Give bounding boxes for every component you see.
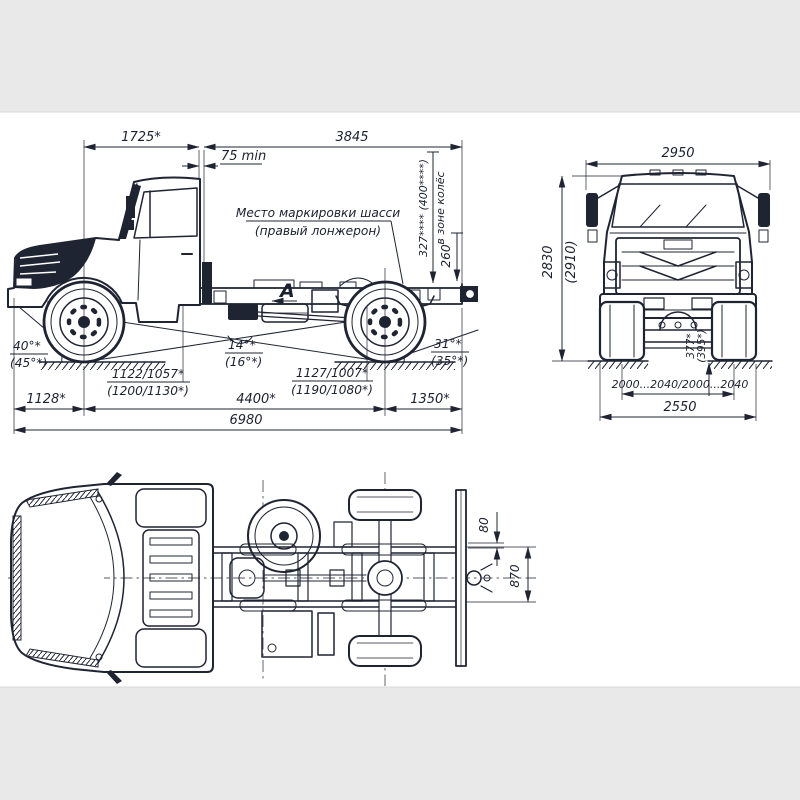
- toolbox: [262, 611, 312, 657]
- top-gray-band: [0, 0, 800, 112]
- dim-6980-label: 6980: [229, 413, 262, 428]
- dim-80-label: 80: [477, 517, 491, 533]
- front-ground-hatch-right: [708, 361, 772, 369]
- frame-bracket-plan: [334, 522, 352, 547]
- cab-hatch-top: [136, 489, 206, 527]
- angle-departure-alt-label: (35°*): [431, 354, 468, 368]
- height-front-alt-label: (1200/1130*): [107, 384, 189, 398]
- battery-box: [312, 290, 338, 312]
- left-mirror: [586, 193, 598, 227]
- dim-track-label: 2000...2040/2000...2040: [612, 378, 749, 391]
- height-front-label: 1122/1057*: [112, 367, 184, 381]
- mirror: [126, 196, 135, 218]
- dim-1350-label: 1350*: [410, 392, 450, 407]
- dim-clearance-alt-label: (395*): [696, 329, 708, 362]
- dim-1128-label: 1128*: [26, 392, 66, 407]
- dim-2830-alt-label: (2910): [564, 240, 579, 283]
- left-mirror-lower: [588, 230, 597, 242]
- rear-wheel-bottom: [349, 636, 421, 666]
- transfer-case: [228, 304, 258, 320]
- dim-1725-label: 1725*: [121, 130, 161, 145]
- dim-3845-label: 3845: [335, 130, 368, 145]
- angle-departure-label: 31°*: [434, 337, 462, 351]
- top-extension-lines: [466, 543, 536, 602]
- height-rear-alt-label: (1190/1080*): [291, 383, 373, 397]
- angle-ramp-alt-label: (16°*): [225, 355, 262, 369]
- marking-note-line1: Место маркировки шасси: [236, 206, 400, 220]
- frame-bracket-1: [214, 291, 226, 303]
- drawing-canvas: 1725* 75 min 3845 327**** (400****) в зо…: [0, 0, 800, 800]
- bottom-gray-band: [0, 687, 800, 800]
- angle-approach-label: 40°*: [13, 339, 41, 353]
- front-ground-hatch-left: [588, 361, 648, 369]
- toolbox-latch: [268, 644, 276, 652]
- cab-hatch-bottom: [136, 629, 206, 667]
- dim-2950-label: 2950: [661, 146, 694, 161]
- dim-327-zone-label: в зоне колёс: [434, 171, 447, 244]
- marking-note-leader: [391, 221, 403, 284]
- side-box: [318, 613, 334, 655]
- top-view: 80 870: [8, 472, 536, 686]
- front-wheel-left: [600, 302, 644, 360]
- hood-outline: [11, 484, 104, 672]
- marking-note-line2: (правый лонжерон): [255, 224, 381, 238]
- height-rear-label: 1127/1007*: [296, 366, 368, 380]
- dim-2830-label: 2830: [541, 245, 556, 278]
- drawing-page: 1725* 75 min 3845 327**** (400****) в зо…: [0, 0, 800, 800]
- frame-rails: [200, 284, 462, 304]
- angle-ramp-label: 14°*: [228, 338, 256, 352]
- hitch-eye: [466, 290, 475, 299]
- front-cab-body: [604, 173, 752, 300]
- dim-870-label: 870: [508, 564, 522, 588]
- right-mirror: [758, 193, 770, 227]
- angle-approach-alt-label: (45°*): [10, 356, 47, 370]
- engine-cover-ribs: [150, 538, 192, 617]
- mirror-lower: [127, 220, 134, 230]
- dim-327-label: 327**** (400****): [417, 159, 430, 257]
- view-a-label: А: [278, 280, 295, 302]
- front-wheel-right: [712, 302, 756, 360]
- rear-wheel-top: [349, 490, 421, 520]
- dim-75-label: 75 min: [221, 149, 266, 164]
- bumper-hatch-band: [13, 516, 21, 640]
- dim-2550-label: 2550: [663, 400, 696, 415]
- rear-diff: [368, 561, 402, 595]
- headlight: [16, 278, 32, 286]
- axle-detail-dot-2: [675, 322, 681, 328]
- front-view: 2950 2830 (2910) 377* (395*) 2000...2040…: [541, 146, 772, 421]
- side-view: 1725* 75 min 3845 327**** (400****) в зо…: [8, 130, 478, 434]
- dim-260-label: 260: [439, 244, 453, 268]
- dim-4400-label: 4400*: [236, 392, 276, 407]
- exhaust-stack: [202, 262, 212, 304]
- spare-wheel-center: [279, 531, 289, 541]
- right-mirror-lower: [759, 230, 768, 242]
